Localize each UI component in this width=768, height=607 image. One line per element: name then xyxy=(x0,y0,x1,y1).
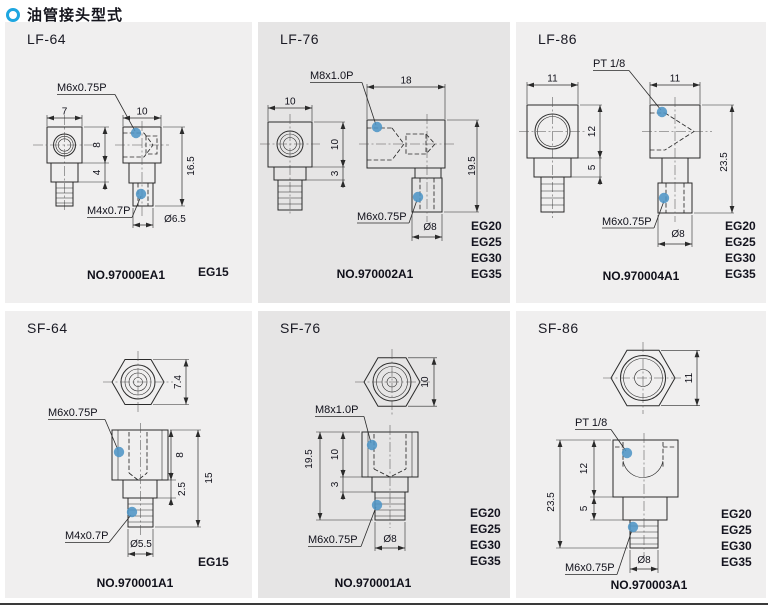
thread-marker-dot xyxy=(372,122,382,132)
dim-label: Ø5.5 xyxy=(130,539,152,550)
dim-total-height: 15 xyxy=(196,430,215,527)
dim-label: 8 xyxy=(175,452,186,458)
dim-total-height: 19.5 xyxy=(304,432,322,520)
eg-size: EG30 xyxy=(721,538,752,554)
dim-label: 23.5 xyxy=(719,152,730,172)
thread-label-top: M6x0.75P xyxy=(57,82,107,94)
eg-size: EG20 xyxy=(725,218,756,234)
dim-step-height: 4 xyxy=(92,155,107,190)
eg-size: EG25 xyxy=(721,522,752,538)
eg-size-list: EG15 xyxy=(198,554,229,570)
thread-marker-dot xyxy=(367,440,377,450)
eg-size: EG35 xyxy=(471,266,502,282)
dim-stud-dia: Ø8 xyxy=(630,555,658,571)
dim-total-height: 19.5 xyxy=(467,120,479,212)
dim-label: 11 xyxy=(547,74,558,85)
dim-label: 12 xyxy=(587,126,598,138)
thread-label-bottom: M6x0.75P xyxy=(602,216,652,228)
dim-label: 12 xyxy=(579,463,590,475)
side-view xyxy=(115,121,169,218)
dim-label: 3 xyxy=(330,170,341,176)
eg-size: EG35 xyxy=(721,554,752,570)
part-number: NO.97000EA1 xyxy=(51,268,201,282)
part-number: NO.970004A1 xyxy=(566,269,716,283)
leader-line xyxy=(629,71,661,111)
dim-stud-dia: Ø8 xyxy=(658,229,692,246)
eg-size: EG20 xyxy=(470,505,501,521)
dim-top-size: 7.4 xyxy=(173,360,188,405)
dim-label: 11 xyxy=(684,372,695,383)
dim-label: 10 xyxy=(136,107,148,118)
leader-line xyxy=(115,95,135,132)
dim-step-height: 3 xyxy=(330,159,345,188)
dim-total-height: 23.5 xyxy=(719,105,734,213)
eg-size-list: EG15 xyxy=(198,264,229,280)
dim-label: 23.5 xyxy=(546,492,557,512)
front-view xyxy=(260,114,320,216)
eg-size: EG30 xyxy=(725,250,756,266)
panel-sf-76: SF-76 10 10 3 xyxy=(258,311,510,598)
thread-marker-dot xyxy=(628,522,638,532)
dim-label: 5 xyxy=(579,505,590,511)
dim-step-height: 3 xyxy=(330,469,345,500)
thread-marker-dot xyxy=(114,447,124,457)
thread-marker-dot xyxy=(622,448,632,458)
dim-label: 2.5 xyxy=(177,482,188,496)
dim-label: 10 xyxy=(284,97,296,108)
eg-size: EG25 xyxy=(725,234,756,250)
thread-label-bottom: M4x0.7P xyxy=(87,205,130,217)
eg-size: EG20 xyxy=(721,506,752,522)
dim-label: 18 xyxy=(400,76,412,87)
technical-drawing-lf-64: 7 8 4 10 16.5 Ø6.5 M6x0.75P M4x0.7P xyxy=(5,22,252,303)
eg-size: EG15 xyxy=(198,554,229,570)
panel-lf-76: LF-76 xyxy=(258,22,510,303)
thread-marker-dot xyxy=(131,128,141,138)
dim-label: Ø6.5 xyxy=(164,214,186,225)
dim-label: 15 xyxy=(204,472,215,484)
dim-label: 19.5 xyxy=(304,449,315,469)
thread-marker-dot xyxy=(659,193,669,203)
eg-size: EG35 xyxy=(470,553,501,569)
front-view xyxy=(519,97,586,218)
side-view xyxy=(642,97,712,222)
panel-sf-86: SF-86 11 12 5 23.5 xyxy=(516,311,766,598)
page-bottom-rule xyxy=(0,603,768,605)
thread-label-top: M8x1.0P xyxy=(310,70,353,82)
eg-size: EG30 xyxy=(471,250,502,266)
dim-total-height: 23.5 xyxy=(546,440,562,548)
panel-lf-64: LF-64 7 xyxy=(5,22,252,303)
dim-label: 7.4 xyxy=(173,375,184,389)
dim-side-width: 10 xyxy=(123,107,161,121)
top-view xyxy=(103,351,173,413)
dim-side-width: 11 xyxy=(650,74,700,88)
panel-sf-64: SF-64 7.4 8 2.5 xyxy=(5,311,252,598)
dim-label: Ø8 xyxy=(423,222,437,233)
thread-label-bottom: M6x0.75P xyxy=(308,534,358,546)
part-number: NO.970001A1 xyxy=(298,576,448,590)
eg-size: EG35 xyxy=(725,266,756,282)
dim-top-size: 10 xyxy=(420,358,436,406)
dim-label: 10 xyxy=(330,139,341,151)
eg-size-list: EG20 EG25 EG30 EG35 xyxy=(471,218,502,282)
eg-size: EG25 xyxy=(470,521,501,537)
thread-marker-dot xyxy=(413,192,423,202)
dim-front-width: 7 xyxy=(47,107,82,121)
thread-label-top: PT 1/8 xyxy=(593,58,625,70)
dim-label: 3 xyxy=(330,481,341,487)
leader-line xyxy=(361,507,376,547)
thread-marker-dot xyxy=(127,507,137,517)
eg-size: EG25 xyxy=(471,234,502,250)
dim-label: 16.5 xyxy=(186,156,197,176)
leader-line xyxy=(364,417,371,444)
dim-front-width: 11 xyxy=(527,74,578,88)
thread-marker-dot xyxy=(657,107,667,117)
thread-label-top: M6x0.75P xyxy=(48,407,98,419)
leader-line xyxy=(654,201,664,228)
thread-label-top: PT 1/8 xyxy=(575,417,607,429)
dim-stud-dia: Ø6.5 xyxy=(133,214,186,227)
eg-size-list: EG20 EG25 EG30 EG35 xyxy=(470,505,501,569)
eg-size: EG20 xyxy=(471,218,502,234)
dim-side-width: 18 xyxy=(367,76,445,90)
dim-label: Ø8 xyxy=(637,555,651,566)
dim-stud-dia: Ø8 xyxy=(375,534,405,550)
dim-stud-dia: Ø8 xyxy=(412,222,442,239)
dim-step-height: 5 xyxy=(579,497,596,520)
thread-marker-dot xyxy=(372,500,382,510)
dim-label: 7 xyxy=(62,107,68,118)
dim-label: 11 xyxy=(670,74,681,85)
dim-label: 19.5 xyxy=(467,156,478,176)
dim-label: 10 xyxy=(420,376,431,388)
thread-marker-dot xyxy=(136,189,146,199)
top-view xyxy=(603,342,683,414)
thread-label-bottom: M6x0.75P xyxy=(357,211,407,223)
panel-lf-86: LF-86 11 11 xyxy=(516,22,766,303)
front-view xyxy=(33,115,96,212)
dim-label: 5 xyxy=(587,164,598,170)
eg-size-list: EG20 EG25 EG30 EG35 xyxy=(725,218,756,282)
part-number: NO.970003A1 xyxy=(574,578,724,592)
dim-label: Ø8 xyxy=(671,229,685,240)
part-number: NO.970002A1 xyxy=(300,267,450,281)
dim-stud-dia: Ø5.5 xyxy=(128,539,153,556)
ring-circle-icon xyxy=(6,8,20,22)
dim-label: 10 xyxy=(330,449,341,461)
part-number: NO.970001A1 xyxy=(60,576,210,590)
dim-body-height: 12 xyxy=(579,440,596,497)
dim-step-height: 2.5 xyxy=(169,472,188,506)
dim-label: 4 xyxy=(92,169,103,175)
dim-total-height: 16.5 xyxy=(180,127,197,206)
eg-size: EG15 xyxy=(198,264,229,280)
dim-top-size: 11 xyxy=(684,350,699,405)
dim-front-width: 10 xyxy=(268,97,312,111)
front-view xyxy=(112,423,168,535)
top-view xyxy=(355,349,430,415)
thread-label-top: M8x1.0P xyxy=(315,404,358,416)
eg-size: EG30 xyxy=(470,537,501,553)
thread-label-bottom: M6x0.75P xyxy=(565,562,615,574)
dim-step-height: 5 xyxy=(587,150,602,185)
dim-label: 8 xyxy=(92,142,103,148)
thread-label-bottom: M4x0.7P xyxy=(65,530,108,542)
dim-label: Ø8 xyxy=(383,534,397,545)
eg-size-list: EG20 EG25 EG30 EG35 xyxy=(721,506,752,570)
